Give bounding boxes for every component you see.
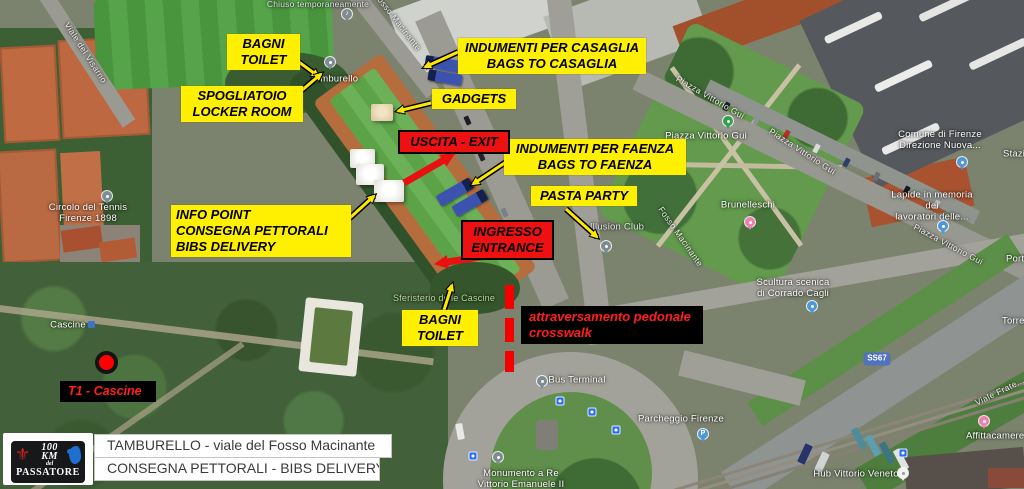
- illusion-club-pin-icon: [601, 241, 611, 251]
- lion-icon: [69, 446, 81, 464]
- ss67-road-shield: SS67: [864, 353, 891, 366]
- gadgets-tent: [371, 104, 393, 121]
- map-label-brunelleschi: Brunelleschi: [721, 201, 775, 212]
- logo-passatore: PASSATORE: [11, 467, 85, 479]
- label-crosswalk: attraversamento pedonale crosswalk: [521, 306, 703, 344]
- red-roof-br: [988, 468, 1024, 488]
- hub-pin-icon: [898, 468, 908, 478]
- memorial-pin-icon: [938, 221, 948, 231]
- monument-base: [536, 420, 558, 450]
- hotel-pin-icon: [745, 217, 755, 227]
- map-label-scultura: Scultura scenica di Corrado Cagli: [757, 278, 830, 300]
- label-t1-cascine: T1 - Cascine: [60, 381, 156, 402]
- map-label-bus-terminal: Bus Terminal: [548, 376, 605, 387]
- monument-pin-icon: [493, 452, 503, 462]
- label-info-point: INFO POINT CONSEGNA PETTORALI BIBS DELIV…: [171, 205, 351, 257]
- map-label-monumento: Monumento a Re Vittorio Emanuele II: [478, 469, 565, 489]
- sculpture-pin-icon: [807, 301, 817, 311]
- label-indumenti-casaglia: INDUMENTI PER CASAGLIA BAGS TO CASAGLIA: [458, 38, 646, 74]
- label-uscita-exit: USCITA - EXIT: [398, 130, 510, 154]
- label-ingresso-entrance: INGRESSO ENTRANCE: [461, 220, 554, 260]
- annotated-satellite-map: Chiuso temporaneamente ♪ Tamburello Foss…: [0, 0, 1024, 489]
- passatore-logo: ⚜ 100 KM del PASSATORE: [11, 441, 85, 483]
- label-indumenti-faenza: INDUMENTI PER FAENZA BAGS TO FAENZA: [504, 139, 686, 175]
- bus-stop-icon: [556, 397, 565, 406]
- label-gadgets: GADGETS: [432, 89, 516, 109]
- parking-letter-icon: P: [698, 429, 708, 439]
- bus-stop-icon: [899, 449, 908, 458]
- map-label-tamburello: Tamburello: [310, 75, 358, 86]
- map-label-parcheggio: Parcheggio Firenze: [638, 415, 724, 426]
- bus-terminal-pin-icon: [537, 376, 547, 386]
- townhall-pin-icon: [957, 157, 967, 167]
- skylight: [918, 0, 978, 22]
- logo-km: KM: [41, 452, 58, 461]
- map-label-sferisterio: Sferisterio delle Cascine: [393, 293, 495, 303]
- tennis-club-pin-icon: [102, 191, 112, 201]
- pool-water: [309, 307, 353, 366]
- fleur-de-lis-icon: ⚜: [15, 446, 30, 464]
- legend-row-tamburello: TAMBURELLO - viale del Fosso Macinante: [94, 434, 392, 458]
- map-label-affittacamere: Affittacamere...: [966, 432, 1024, 443]
- skylight: [968, 37, 1024, 70]
- tamburello-pin-icon: [325, 57, 335, 67]
- legend-row-consegna: CONSEGNA PETTORALI - BIBS DELIVERY: [94, 457, 380, 481]
- crosswalk-dashed-line: [505, 285, 514, 372]
- map-label-comune: Comune di Firenze Direzione Nuova...: [898, 130, 982, 152]
- map-label-stazione: Stazione: [1003, 150, 1024, 161]
- road-roundabout-east: [678, 350, 806, 405]
- logo-top-row: ⚜ 100 KM del: [11, 441, 85, 467]
- tram-stop-icon: [88, 321, 95, 328]
- skylight: [824, 11, 884, 44]
- map-label-lapide: Lapide in memoria dei lavoratori delle..…: [886, 191, 978, 224]
- map-label-porta: Porta a...: [1006, 255, 1024, 266]
- bus-stop-icon: [588, 408, 597, 417]
- parking-pin-icon: P: [698, 429, 708, 439]
- bus-stop-icon: [469, 452, 478, 461]
- t1-stop-dot: [95, 351, 118, 374]
- lodging-pin-icon: [979, 416, 989, 426]
- label-pasta-party: PASTA PARTY: [531, 186, 637, 206]
- map-label-circolo-tennis: Circolo del Tennis Firenze 1898: [49, 203, 127, 225]
- music-pin-icon: ♪: [342, 9, 352, 19]
- label-bagni-top: BAGNI TOILET: [227, 34, 300, 70]
- skylight: [874, 59, 934, 92]
- white-tent: [374, 180, 404, 202]
- music-note-icon: ♪: [342, 9, 352, 19]
- label-spogliatoio: SPOGLIATOIO LOCKER ROOM: [181, 86, 303, 122]
- map-label-torre: Torre de...: [1002, 317, 1024, 328]
- pedestrian-pin-icon: [723, 116, 733, 126]
- map-label-illusion-club: Illusion Club: [590, 223, 644, 234]
- map-label-cascine: Cascine: [50, 321, 86, 332]
- map-label-chiuso: Chiuso temporaneamente: [267, 0, 369, 10]
- tennis-court: [0, 45, 60, 144]
- bus-stop-icon: [612, 426, 621, 435]
- pool-deck: [298, 297, 363, 377]
- map-label-hub: Hub Vittorio Veneto: [813, 470, 899, 481]
- label-bagni-bottom: BAGNI TOILET: [402, 310, 478, 346]
